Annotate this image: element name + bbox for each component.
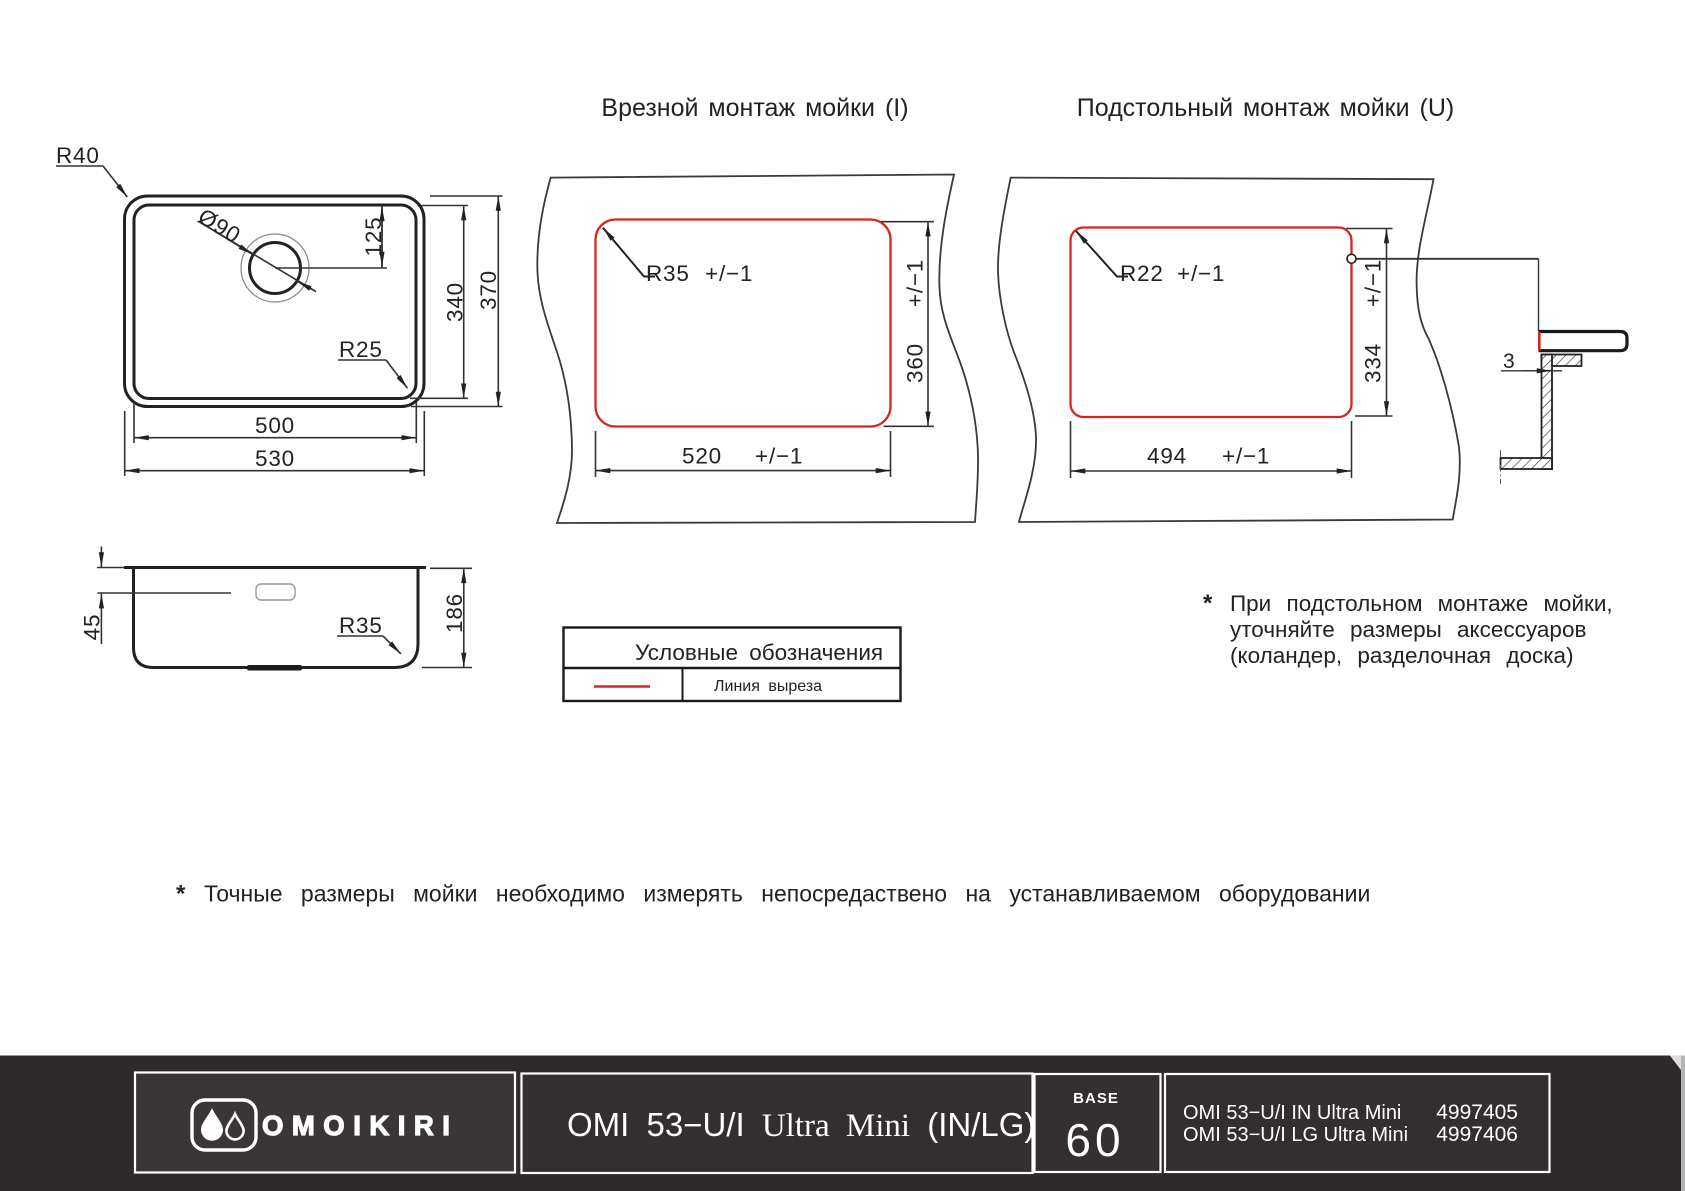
- svg-text:OMI 53−U/I IN Ultra Mini: OMI 53−U/I IN Ultra Mini: [1183, 1102, 1401, 1124]
- svg-text:334+/−1: 334+/−1: [1361, 259, 1386, 383]
- svg-text:370: 370: [476, 270, 501, 310]
- svg-text:R22+/−1: R22+/−1: [1120, 261, 1225, 286]
- svg-text:*: *: [1203, 590, 1213, 617]
- svg-text:360+/−1: 360+/−1: [903, 259, 928, 383]
- svg-text:BASE: BASE: [1073, 1090, 1119, 1107]
- svg-text:Ø90: Ø90: [194, 204, 245, 249]
- svg-text:60: 60: [1065, 1114, 1124, 1166]
- svg-text:Подстольный монтаж мойки (U): Подстольный монтаж мойки (U): [1077, 94, 1454, 122]
- svg-text:уточняйте размеры аксессуаров: уточняйте размеры аксессуаров: [1230, 617, 1586, 642]
- svg-text:494+/−1: 494+/−1: [1147, 444, 1270, 469]
- svg-text:OMI 53−U/I LG Ultra Mini: OMI 53−U/I LG Ultra Mini: [1183, 1124, 1408, 1146]
- svg-text:При подстольном монтаже мойки,: При подстольном монтаже мойки,: [1230, 591, 1613, 616]
- svg-text:*: *: [176, 881, 186, 908]
- svg-text:4997405: 4997405: [1436, 1101, 1518, 1124]
- svg-text:Условные обозначения: Условные обозначения: [635, 640, 883, 665]
- svg-text:R35: R35: [339, 613, 383, 638]
- svg-text:530: 530: [255, 446, 295, 471]
- svg-text:520+/−1: 520+/−1: [682, 444, 803, 469]
- svg-text:186: 186: [442, 593, 467, 633]
- svg-text:340: 340: [443, 282, 468, 322]
- svg-text:4997406: 4997406: [1436, 1123, 1518, 1146]
- svg-text:R35+/−1: R35+/−1: [646, 261, 753, 286]
- svg-text:125: 125: [361, 217, 386, 257]
- svg-text:R40: R40: [56, 143, 100, 168]
- svg-text:500: 500: [255, 413, 295, 438]
- svg-text:Линия выреза: Линия выреза: [714, 678, 822, 695]
- svg-text:3: 3: [1503, 350, 1515, 373]
- svg-text:Точные размеры мойки необходим: Точные размеры мойки необходимо измерять…: [204, 881, 1370, 907]
- svg-text:(коландер, разделочная доска): (коландер, разделочная доска): [1230, 643, 1574, 668]
- svg-text:OMOIKIRI: OMOIKIRI: [262, 1110, 458, 1141]
- svg-text:OMI 53−U/I Ultra Mini (IN/LG): OMI 53−U/I Ultra Mini (IN/LG): [567, 1106, 1035, 1144]
- svg-text:45: 45: [80, 614, 105, 641]
- svg-text:R25: R25: [339, 337, 383, 362]
- svg-text:Врезной монтаж мойки (I): Врезной монтаж мойки (I): [601, 94, 908, 122]
